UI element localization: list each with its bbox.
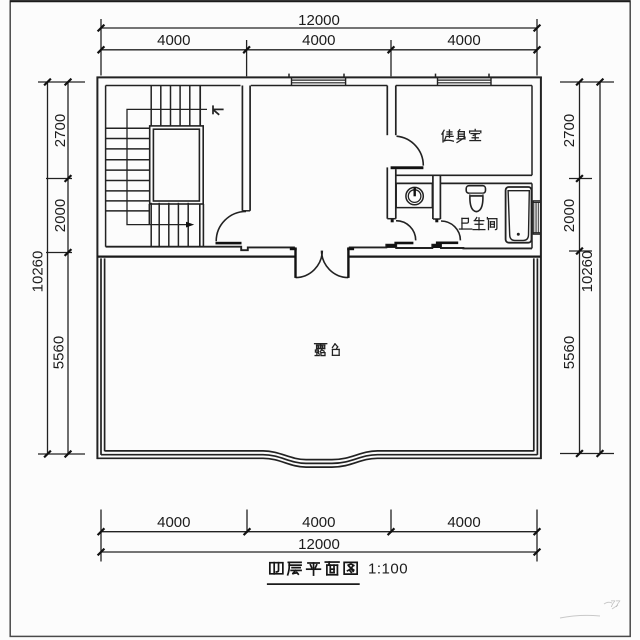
svg-text:10260: 10260: [579, 251, 596, 293]
svg-text:2000: 2000: [52, 199, 69, 232]
svg-text:12000: 12000: [298, 536, 340, 553]
svg-text:77: 77: [610, 599, 621, 609]
svg-text:5560: 5560: [561, 336, 578, 369]
svg-text:2700: 2700: [561, 114, 578, 147]
svg-text:4000: 4000: [447, 32, 480, 49]
svg-text:2700: 2700: [52, 114, 69, 147]
svg-text:2000: 2000: [561, 199, 578, 232]
svg-text:10260: 10260: [29, 251, 46, 293]
svg-text:1:100: 1:100: [368, 561, 408, 578]
svg-text:12000: 12000: [298, 12, 340, 29]
svg-text:4000: 4000: [157, 514, 190, 531]
svg-text:4000: 4000: [157, 32, 190, 49]
svg-text:4000: 4000: [302, 514, 335, 531]
svg-text:5560: 5560: [50, 336, 67, 369]
svg-text:4000: 4000: [302, 32, 335, 49]
svg-text:4000: 4000: [447, 514, 480, 531]
